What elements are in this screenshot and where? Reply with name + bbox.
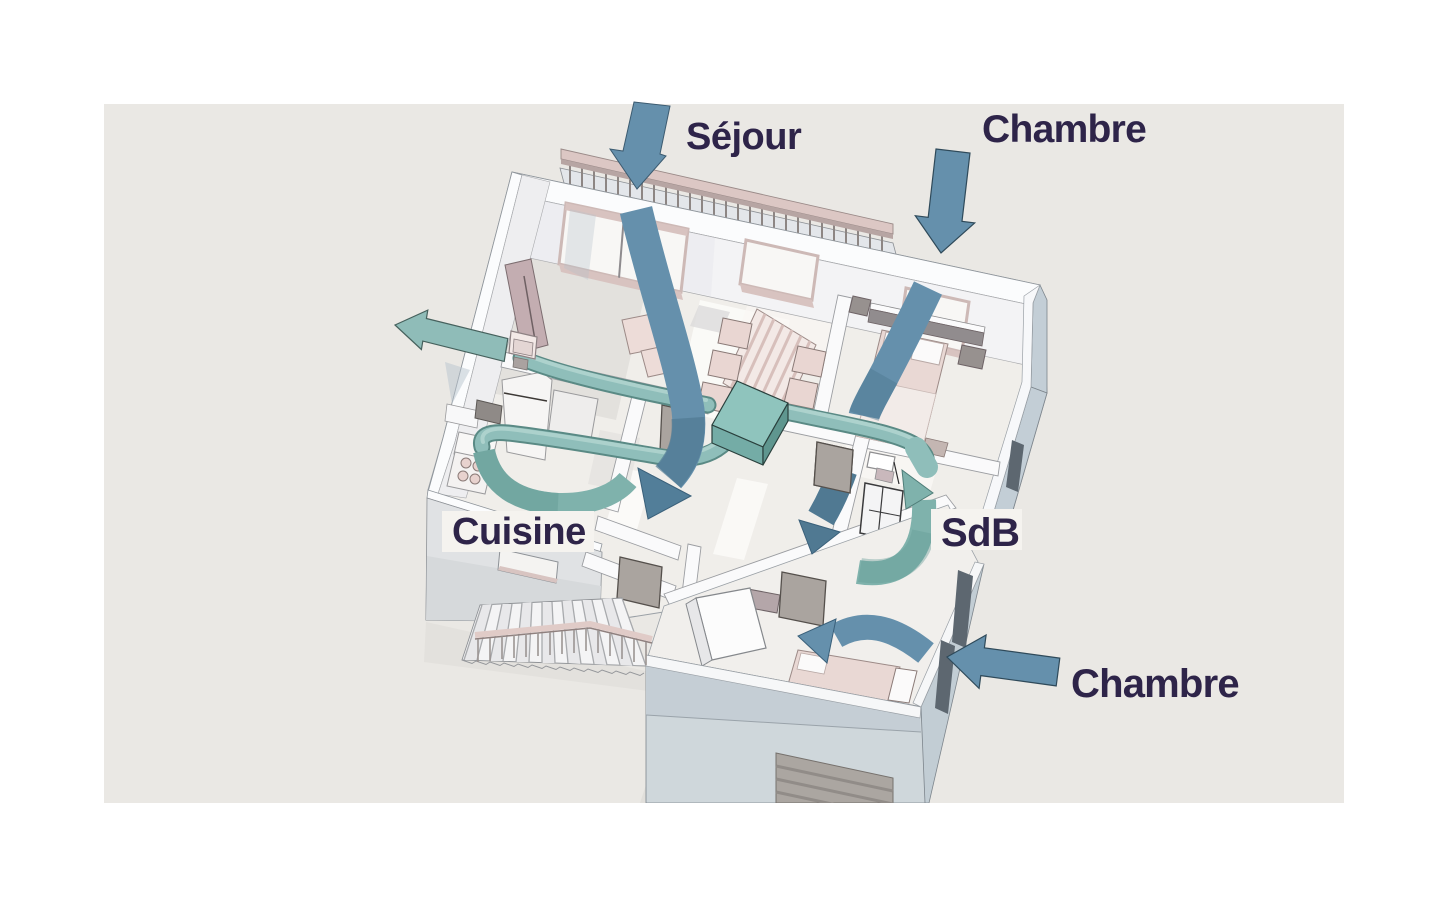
- svg-text:Chambre: Chambre: [982, 108, 1146, 151]
- svg-text:Cuisine: Cuisine: [452, 511, 586, 553]
- svg-text:Chambre: Chambre: [1071, 662, 1239, 706]
- svg-text:Séjour: Séjour: [686, 116, 802, 158]
- svg-text:SdB: SdB: [941, 511, 1020, 555]
